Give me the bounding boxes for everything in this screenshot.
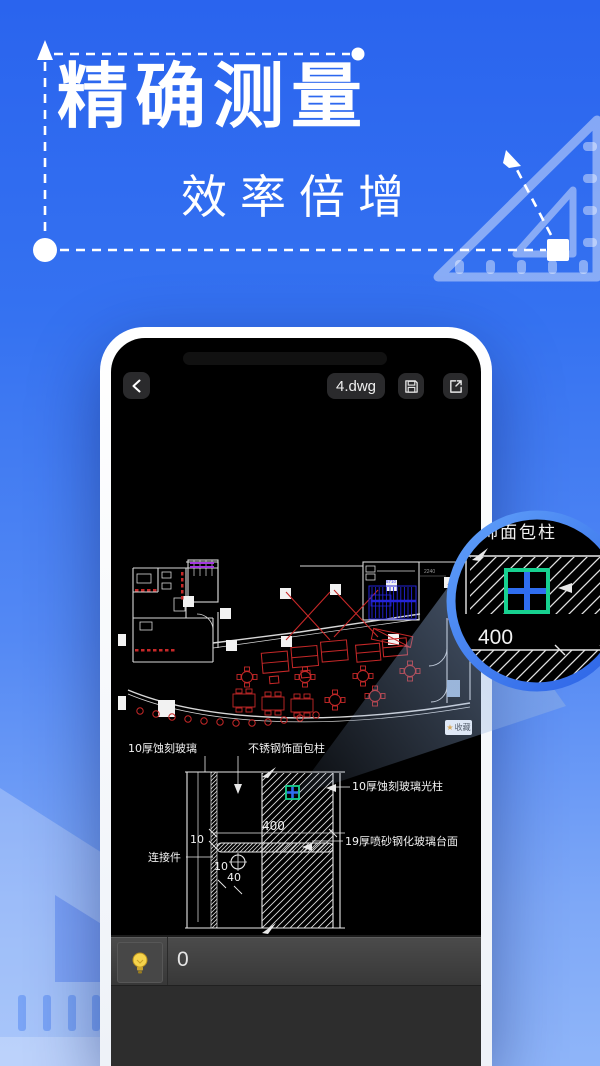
label-glass: 10厚蚀刻玻璃 (128, 741, 197, 755)
cad-canvas[interactable]: 5710 2240 (111, 398, 481, 935)
label-table: 19厚喷砂钢化玻璃台面 (345, 834, 458, 848)
dashed-diagonal-line (515, 166, 551, 235)
filename-chip[interactable]: 4.dwg (327, 373, 385, 399)
toolbar-divider (167, 937, 168, 985)
measure-toolbar: 0 (111, 935, 481, 985)
label-column: 不锈钢饰面包柱 (248, 741, 325, 755)
table-top-member (217, 843, 333, 852)
plan-dim: 2240 (424, 569, 435, 575)
floorplan-rect-tables (233, 689, 313, 717)
floorplan-round-tables (237, 661, 420, 710)
floorplan-purple-lines (190, 563, 214, 567)
measure-dashes-decoration (0, 0, 600, 320)
hero-title: 精确测量 (57, 62, 369, 133)
export-arrow-icon (448, 379, 463, 394)
floorplan-braces (286, 584, 470, 640)
app-screen: 4.dwg (111, 338, 481, 1066)
ruler-teeth (455, 142, 597, 274)
circle-marker (33, 238, 57, 262)
dim-10a: 10 (190, 833, 204, 846)
set-square-outline (438, 120, 597, 277)
favorite-label: 收藏 (455, 724, 471, 732)
phone-mockup: 4.dwg (100, 327, 492, 1066)
hero-subtitle: 效率倍增 (181, 174, 417, 220)
up-arrow-icon (37, 40, 53, 60)
floppy-disk-icon (404, 379, 419, 394)
chevron-left-icon (130, 379, 144, 393)
cursor-arrow-icon (503, 150, 521, 168)
star-icon: ★ (446, 724, 453, 732)
favorite-badge[interactable]: ★ 收藏 (445, 720, 472, 735)
dim-400: 400 (262, 819, 285, 833)
magnified-arrow-left (558, 583, 572, 593)
label-connector: 连接件 (148, 851, 181, 864)
share-button[interactable] (443, 373, 468, 399)
magnified-selected-cross (508, 572, 546, 610)
lightbulb-icon (131, 951, 149, 975)
back-button[interactable] (123, 372, 150, 399)
set-square-inner-outline (516, 190, 573, 254)
label-light-column: 10厚蚀刻玻璃光柱 (352, 779, 443, 793)
dim-40: 40 (227, 871, 241, 884)
leader-arrow-down (234, 784, 242, 794)
phone-notch (183, 352, 387, 365)
dim-10b: 10 (214, 860, 228, 873)
plan-fixture (447, 680, 460, 697)
save-button[interactable] (398, 373, 424, 399)
magnified-selected-element (506, 570, 548, 612)
stairs-dim: 5710 (386, 579, 397, 584)
square-marker (547, 239, 569, 261)
hint-button[interactable] (117, 942, 163, 983)
section-detail: 10厚蚀刻玻璃 不锈钢饰面包柱 10厚蚀刻玻璃光柱 19厚喷砂钢化玻璃台面 连接… (128, 741, 458, 934)
promo-page: 精确测量 效率倍增 4.dwg (0, 0, 600, 1066)
toolbar-lower-panel (111, 985, 481, 1066)
triangle-ruler-decoration (0, 0, 600, 320)
measurement-value-field[interactable]: 0 (177, 948, 189, 972)
glass-member (211, 772, 217, 928)
floorplan-red-dashes (135, 572, 184, 652)
